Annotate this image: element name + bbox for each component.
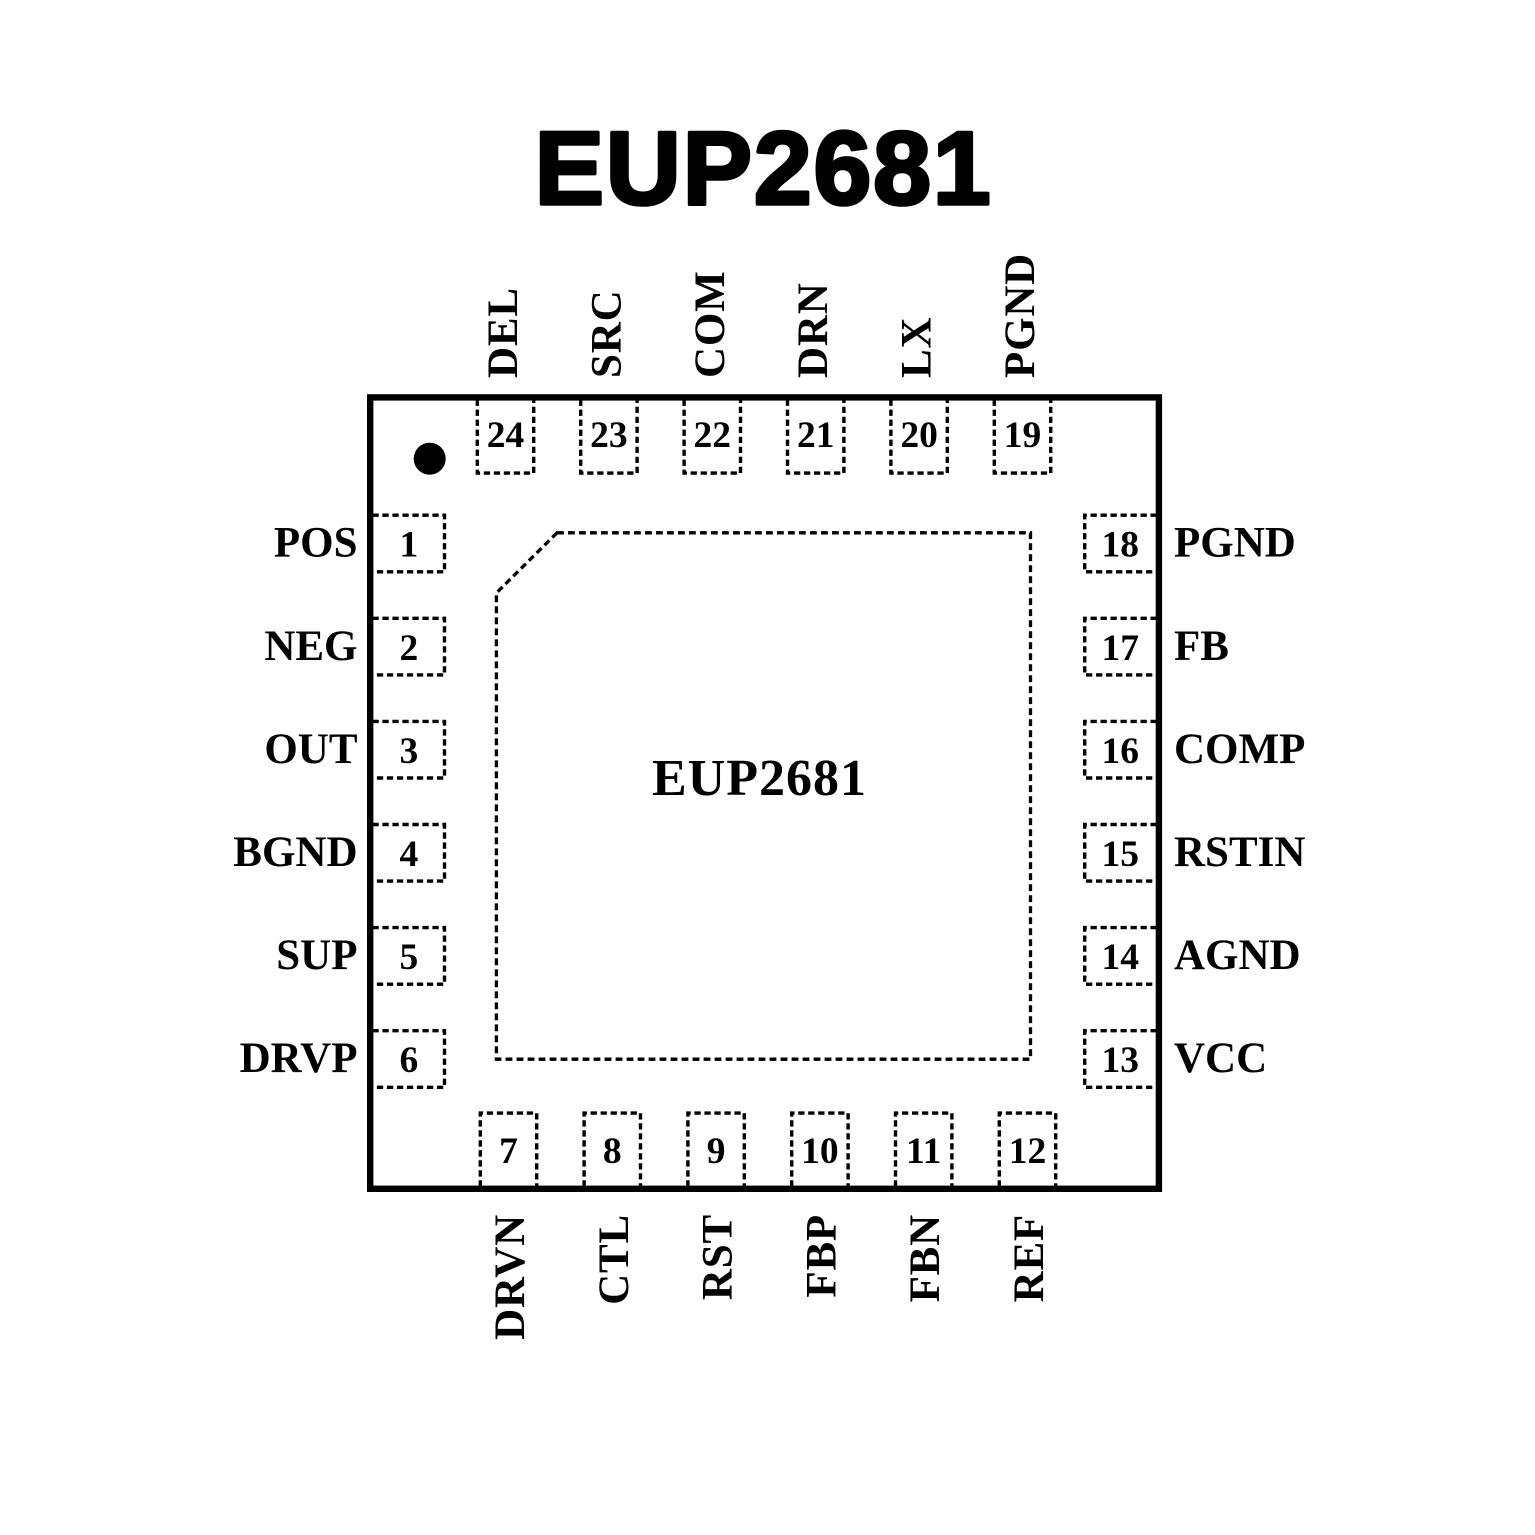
svg-text:OUT: OUT xyxy=(264,726,358,773)
svg-text:DEL: DEL xyxy=(480,287,527,378)
svg-text:COMP: COMP xyxy=(1174,726,1305,773)
svg-text:6: 6 xyxy=(400,1040,419,1081)
svg-text:LX: LX xyxy=(894,317,941,378)
svg-text:DRN: DRN xyxy=(790,282,837,378)
svg-text:2: 2 xyxy=(400,628,419,669)
svg-text:NEG: NEG xyxy=(264,623,357,670)
svg-text:9: 9 xyxy=(707,1131,726,1172)
svg-text:FBN: FBN xyxy=(902,1214,949,1302)
svg-text:19: 19 xyxy=(1004,415,1042,456)
svg-text:24: 24 xyxy=(487,415,525,456)
svg-text:12: 12 xyxy=(1009,1131,1047,1172)
svg-text:COM: COM xyxy=(687,271,734,379)
svg-text:17: 17 xyxy=(1101,628,1139,669)
svg-text:10: 10 xyxy=(801,1131,839,1172)
svg-text:FB: FB xyxy=(1174,623,1229,670)
svg-text:4: 4 xyxy=(400,834,419,875)
svg-text:AGND: AGND xyxy=(1174,932,1301,979)
svg-text:DRVP: DRVP xyxy=(240,1035,358,1082)
svg-text:REF: REF xyxy=(1006,1214,1053,1302)
svg-text:22: 22 xyxy=(694,415,732,456)
svg-text:RSTIN: RSTIN xyxy=(1174,829,1305,876)
svg-text:CTL: CTL xyxy=(591,1214,638,1305)
svg-text:11: 11 xyxy=(906,1131,941,1172)
svg-text:3: 3 xyxy=(400,731,419,772)
svg-text:FBP: FBP xyxy=(798,1214,845,1298)
svg-text:15: 15 xyxy=(1101,834,1139,875)
svg-text:21: 21 xyxy=(797,415,835,456)
svg-text:8: 8 xyxy=(603,1131,622,1172)
svg-text:7: 7 xyxy=(499,1131,518,1172)
svg-text:20: 20 xyxy=(900,415,938,456)
svg-text:PGND: PGND xyxy=(1174,520,1296,567)
svg-text:PGND: PGND xyxy=(997,253,1044,378)
svg-text:1: 1 xyxy=(400,525,419,566)
svg-text:13: 13 xyxy=(1101,1040,1139,1081)
svg-text:5: 5 xyxy=(400,937,419,978)
svg-text:DRVN: DRVN xyxy=(487,1214,534,1340)
svg-text:POS: POS xyxy=(274,520,358,567)
svg-text:RST: RST xyxy=(695,1214,742,1300)
svg-text:16: 16 xyxy=(1101,731,1139,772)
svg-text:23: 23 xyxy=(590,415,628,456)
svg-text:BGND: BGND xyxy=(233,829,357,876)
svg-text:EUP2681: EUP2681 xyxy=(652,750,867,807)
svg-text:18: 18 xyxy=(1101,525,1139,566)
svg-text:14: 14 xyxy=(1101,937,1139,978)
svg-text:VCC: VCC xyxy=(1174,1035,1267,1082)
svg-text:EUP2681: EUP2681 xyxy=(535,111,993,227)
svg-text:SRC: SRC xyxy=(583,290,630,378)
svg-text:SUP: SUP xyxy=(276,932,357,979)
